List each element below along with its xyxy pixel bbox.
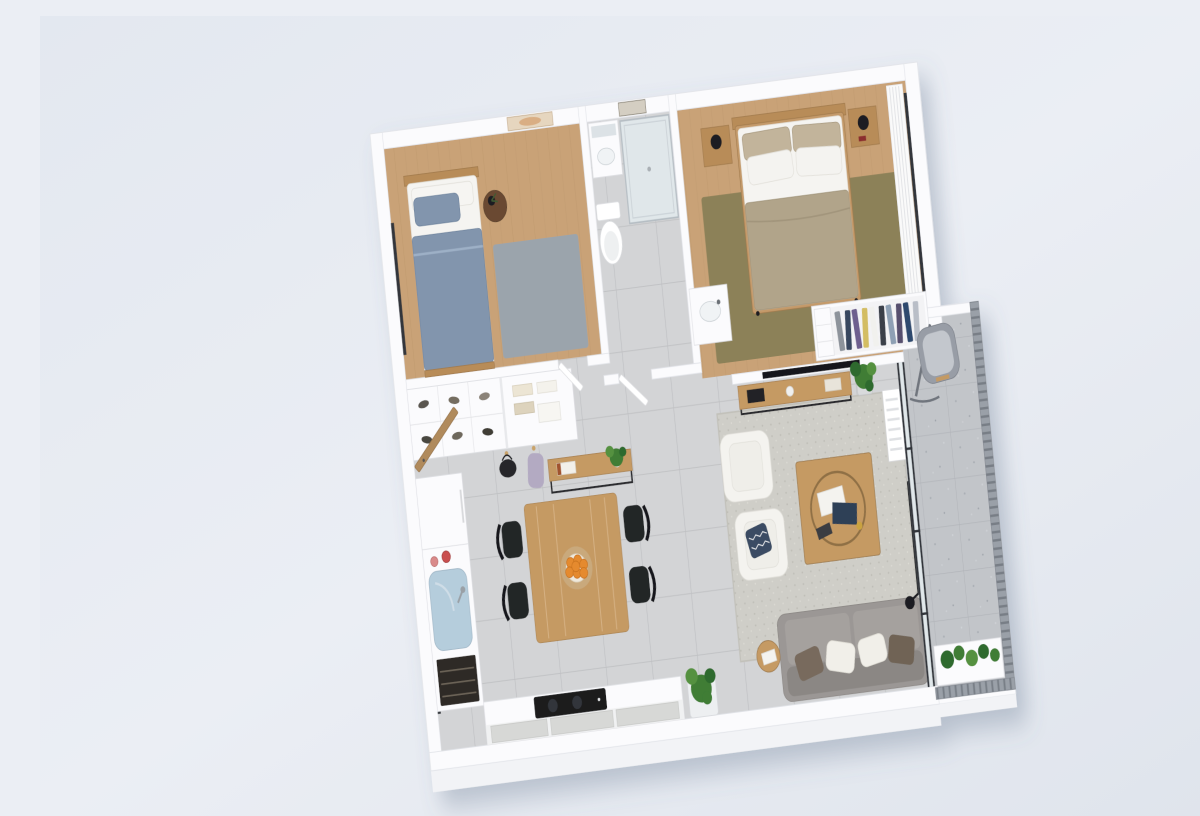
console-speaker [747,388,765,403]
taupe-blanket [745,190,859,311]
sofa [776,596,930,703]
floor-plan-render: 3D rendered isometric floor plan of a tw… [40,16,1200,816]
balcony-planter [934,637,1005,685]
coffee-table [795,452,880,564]
kitchen-sink [428,568,473,652]
sofa-pillow-brown-2 [888,634,915,665]
magazine-navy [832,502,857,524]
armchair-1 [719,429,774,503]
scene-canvas [40,16,1200,816]
sofa-pillow-white-1 [826,640,856,674]
nightstand-book [858,136,866,142]
apartment-building [370,57,1018,792]
bathroom-south-wall-stub [604,374,620,386]
fridge-cabinet [415,473,468,550]
small-bedroom-rug [493,234,589,359]
single-bed-blue-pillow [413,193,461,227]
armchair-2 [734,507,789,581]
console-book-stack [825,378,842,392]
white-pillow-right [796,146,843,177]
hanging-coat [528,453,545,488]
toilet-tank [596,201,621,221]
